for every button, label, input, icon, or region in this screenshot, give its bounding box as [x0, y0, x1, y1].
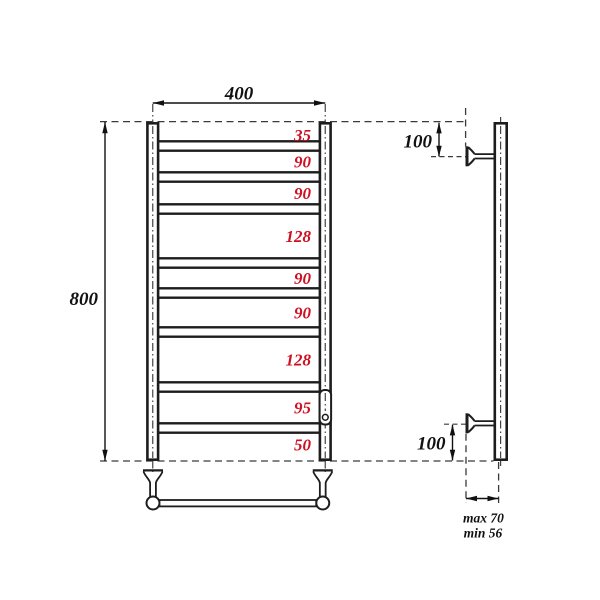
segment-label-6: 90	[294, 304, 312, 323]
dimension-width: 400	[153, 84, 326, 106]
dimension-top-offset: 100	[404, 122, 442, 156]
arrow-left-icon	[153, 100, 164, 105]
wall-bracket-top	[467, 146, 495, 166]
rung-7	[150, 382, 328, 391]
segment-label-9: 50	[294, 436, 312, 455]
rung-8	[150, 423, 328, 432]
top-bracket-cone-lower	[468, 159, 474, 166]
arrow-down-icon	[450, 450, 455, 461]
top-bracket-cone-upper	[468, 147, 474, 154]
arrow-right-icon	[488, 496, 499, 501]
arrow-down-icon	[102, 450, 107, 461]
depth-max-label: max 70	[463, 511, 504, 526]
segment-label-3: 90	[294, 184, 312, 203]
depth-min-label: min 56	[464, 526, 503, 541]
mounting-feet	[143, 470, 333, 509]
power-switch	[320, 390, 332, 425]
top-offset-label: 100	[404, 132, 433, 153]
width-dim-label: 400	[224, 84, 254, 105]
right-foot-stem-left	[313, 472, 320, 497]
bottom-bracket-cone-upper	[468, 414, 474, 421]
drawing-svg: 400 800 35 90 90 128 90 90 128 95 50	[0, 0, 600, 600]
bottom-bracket-cone-lower	[468, 426, 474, 433]
left-foot-stem-right	[156, 472, 163, 497]
rung-5	[150, 288, 328, 297]
side-view: 100 100 max 70 min 56	[404, 122, 507, 540]
arrow-up-icon	[102, 122, 107, 133]
arrow-up-icon	[450, 424, 455, 435]
arrow-up-icon	[436, 122, 441, 133]
dimension-height: 800	[70, 122, 108, 461]
segment-label-5: 90	[294, 269, 312, 288]
bottom-crossbar	[160, 500, 317, 506]
left-foot-stem-left	[144, 472, 151, 497]
segment-label-1: 35	[293, 126, 312, 145]
segment-label-7: 128	[286, 351, 312, 370]
dimension-bottom-offset: 100	[417, 424, 455, 460]
rung-6	[150, 327, 328, 336]
rung-4	[150, 258, 328, 267]
arrow-left-icon	[466, 496, 477, 501]
bottom-offset-label: 100	[417, 434, 446, 455]
rung-2	[150, 172, 328, 181]
segment-label-8: 95	[294, 399, 312, 418]
left-foot-joint-icon	[147, 497, 160, 510]
rung-3	[150, 204, 328, 213]
arrow-right-icon	[314, 100, 325, 105]
right-foot-joint-icon	[316, 497, 329, 510]
towel-rail-drawing: 400 800 35 90 90 128 90 90 128 95 50	[0, 0, 600, 600]
segment-label-4: 128	[286, 227, 312, 246]
segment-label-2: 90	[294, 153, 312, 172]
wall-bracket-bottom	[467, 413, 495, 433]
height-dim-label: 800	[70, 289, 99, 310]
right-foot-stem-right	[326, 472, 333, 497]
arrow-down-icon	[436, 146, 441, 157]
